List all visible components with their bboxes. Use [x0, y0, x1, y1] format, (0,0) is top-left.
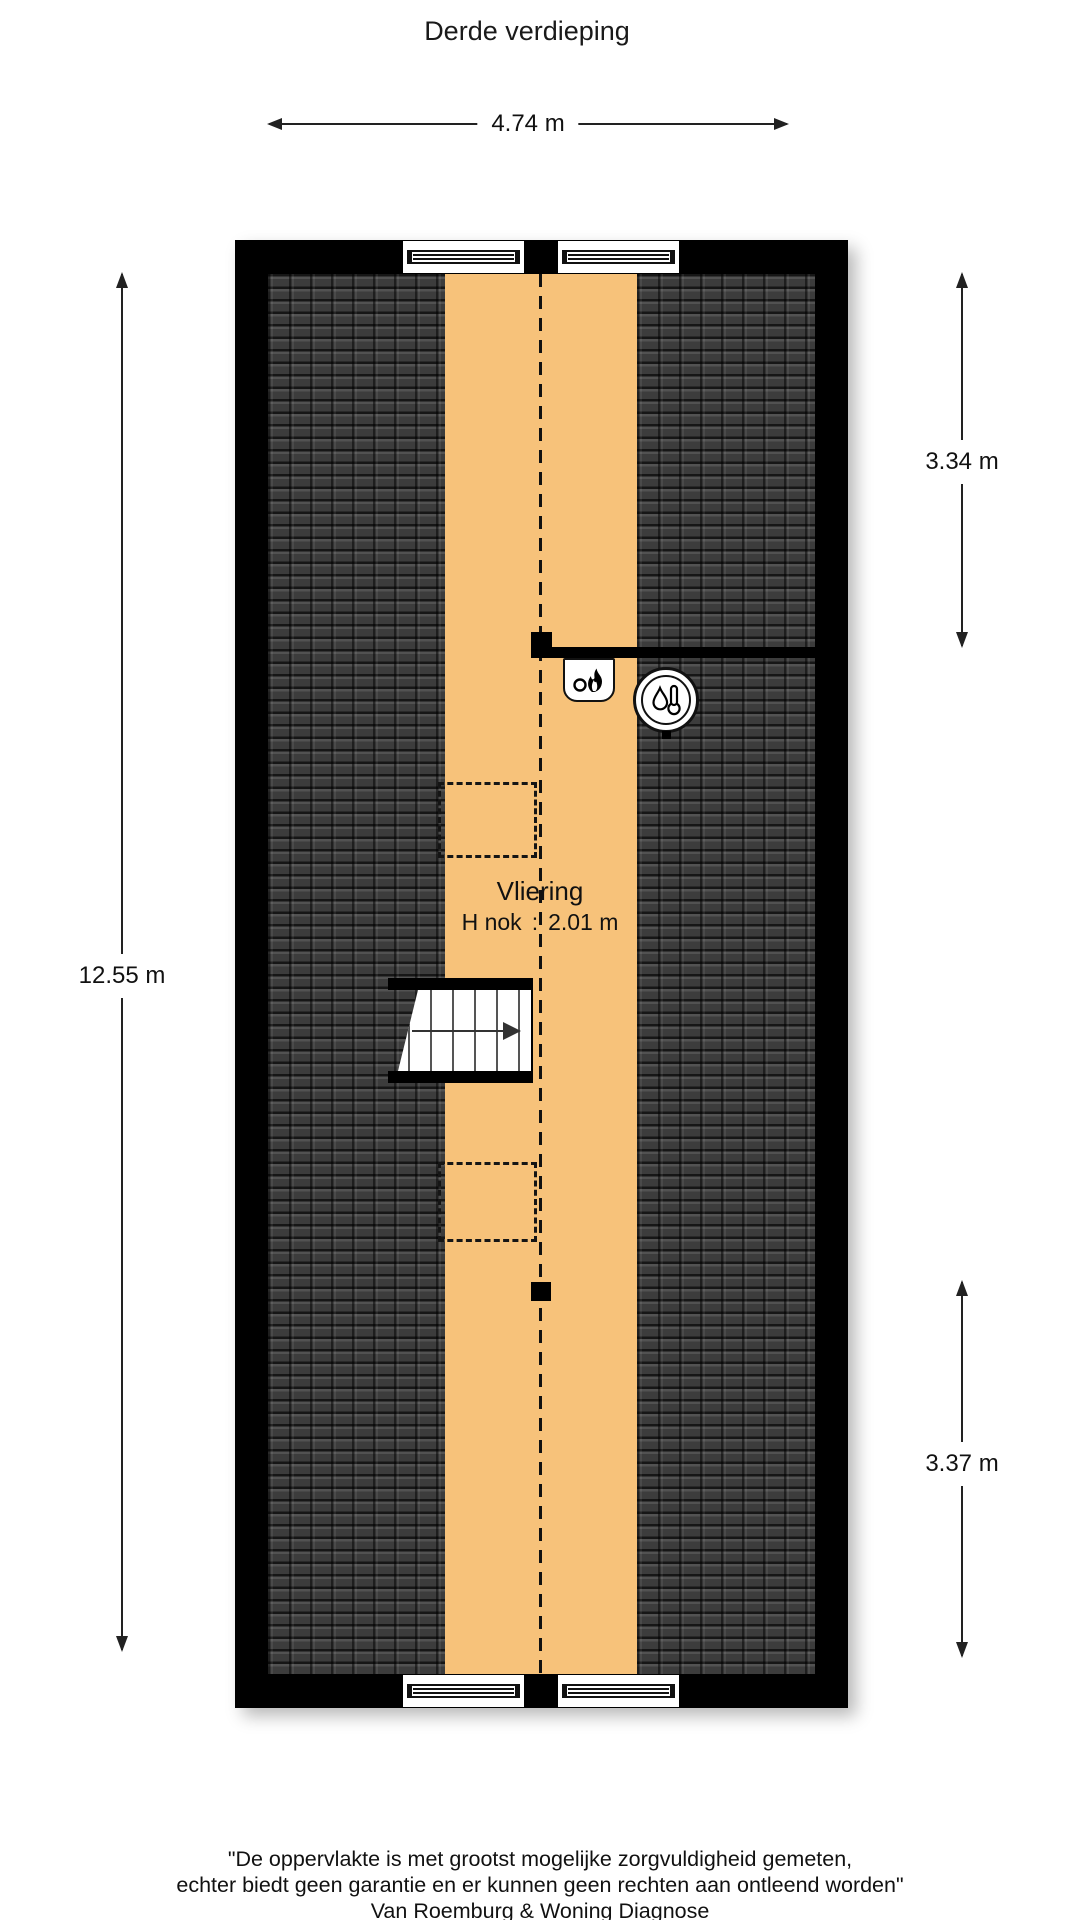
floorplan: Vliering H nok : 2.01 m [235, 240, 848, 1708]
stairs-edge [531, 978, 533, 1083]
stairs-up-arrow-icon [503, 1022, 521, 1040]
page-title: Derde verdieping [424, 16, 630, 47]
window-top-right [557, 240, 680, 274]
dimension-height-right-lower: 3.37 m [954, 1280, 970, 1658]
window-bottom-right [557, 1674, 680, 1708]
ridge-height-label: H nok : 2.01 m [462, 909, 619, 936]
stairs-direction-line [412, 1030, 503, 1032]
flame-icon [571, 667, 607, 694]
arrow-down-icon [956, 1642, 968, 1658]
ridge-height-key: H nok [462, 909, 522, 936]
dashed-outline-lower [438, 1162, 537, 1242]
dimension-height-right-upper: 3.34 m [954, 272, 970, 648]
window-top-left [402, 240, 525, 274]
interior-wall [533, 647, 848, 658]
stairs-wall-top [388, 978, 533, 990]
dimension-height-right-lower-label: 3.37 m [917, 1442, 1006, 1486]
cv-unit [563, 658, 615, 702]
dimension-width-top: 4.74 m [267, 116, 789, 132]
ridge-node [531, 1282, 551, 1301]
dashed-outline-upper [438, 782, 537, 858]
boiler-unit [633, 667, 699, 733]
room-name-label: Vliering [497, 876, 584, 907]
interior-wall-stub [531, 632, 552, 658]
window-glazing [407, 1684, 520, 1698]
dimension-height-left: 12.55 m [114, 272, 130, 1652]
arrow-up-icon [956, 1280, 968, 1296]
ridge-center-dashed-line [539, 274, 542, 1674]
dimension-height-right-upper-label: 3.34 m [917, 440, 1006, 484]
stairs [388, 978, 533, 1083]
dimension-width-top-label: 4.74 m [477, 108, 578, 140]
floorplan-page: Derde verdieping 4.74 m 12.55 m 3.34 m 3… [0, 0, 1080, 1920]
arrow-right-icon [774, 118, 789, 130]
arrow-up-icon [956, 272, 968, 288]
window-glazing [562, 250, 675, 264]
roof-section-right [637, 274, 815, 1674]
boiler-connection-stub [662, 731, 671, 739]
footer-line-2: echter biedt geen garantie en er kunnen … [0, 1872, 1080, 1898]
arrow-down-icon [116, 1636, 128, 1652]
dimension-height-left-label: 12.55 m [71, 954, 174, 998]
ridge-height-value: 2.01 m [548, 909, 618, 936]
footer-line-1: "De oppervlakte is met grootst mogelijke… [0, 1846, 1080, 1872]
footer-line-3: Van Roemburg & Woning Diagnose [0, 1898, 1080, 1920]
arrow-down-icon [956, 632, 968, 648]
window-glazing [562, 1684, 675, 1698]
window-glazing [407, 250, 520, 264]
ridge-height-separator: : [532, 909, 538, 936]
footer-disclaimer: "De oppervlakte is met grootst mogelijke… [0, 1846, 1080, 1920]
roof-section-left [268, 274, 445, 1674]
arrow-up-icon [116, 272, 128, 288]
boiler-inner-ring [641, 675, 691, 725]
window-bottom-left [402, 1674, 525, 1708]
arrow-left-icon [267, 118, 282, 130]
stairs-wall-bottom [388, 1071, 533, 1083]
